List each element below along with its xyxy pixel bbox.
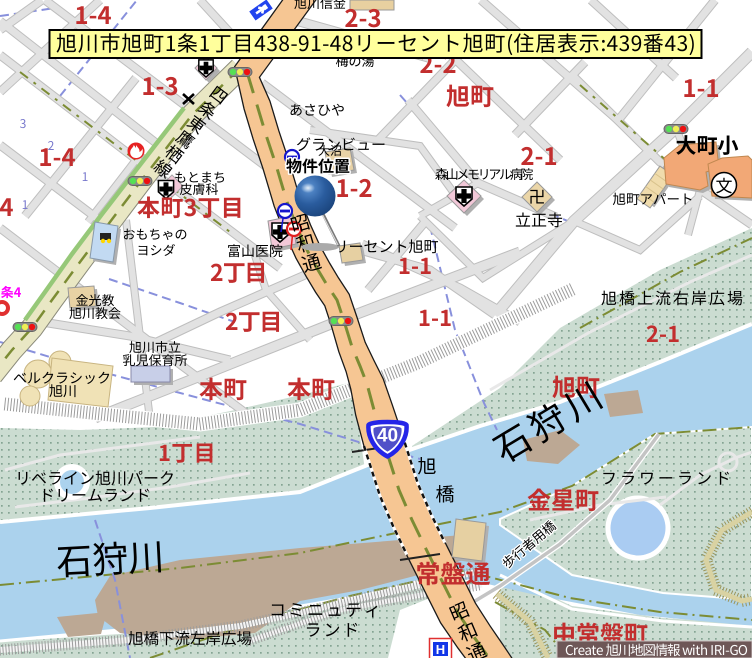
svg-text:H: H [436,642,445,657]
svg-text:40: 40 [377,426,398,447]
